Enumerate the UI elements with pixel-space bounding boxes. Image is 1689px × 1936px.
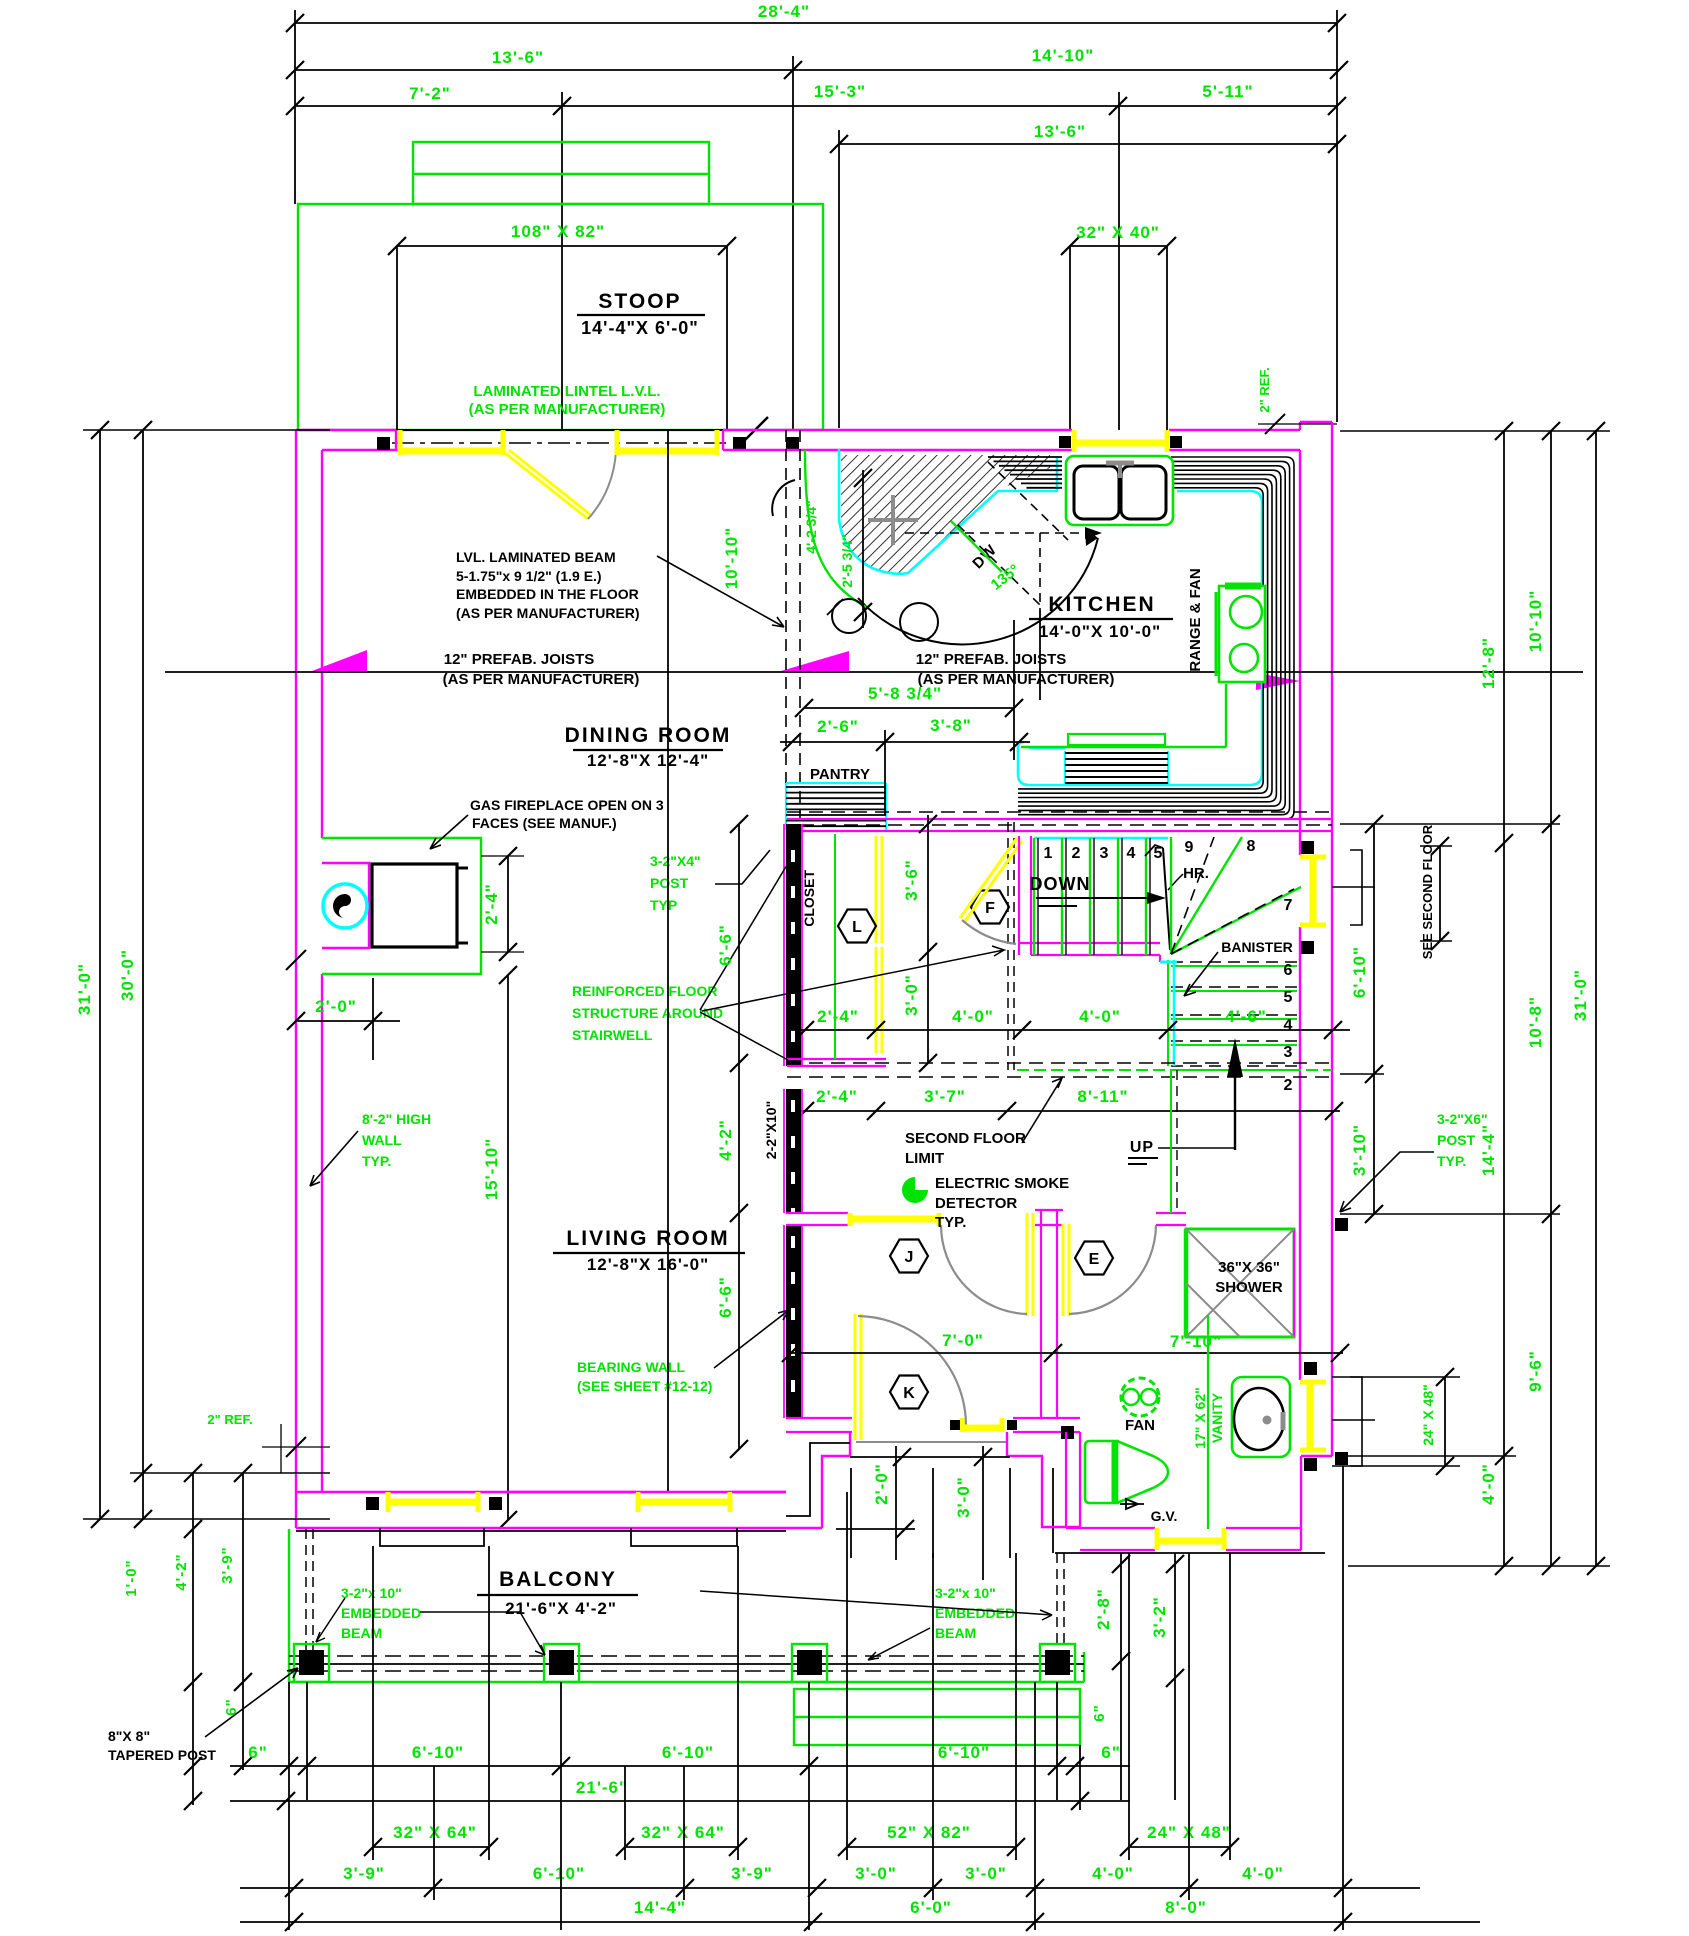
svg-text:VANITY: VANITY: [1209, 1392, 1225, 1443]
svg-text:30'-0": 30'-0": [118, 949, 137, 1001]
svg-text:J: J: [905, 1249, 914, 1266]
svg-text:2'-0": 2'-0": [872, 1463, 891, 1505]
svg-text:(AS PER MANUFACTURER): (AS PER MANUFACTURER): [443, 671, 640, 688]
svg-text:7'-0": 7'-0": [942, 1331, 984, 1350]
svg-text:6'-10": 6'-10": [938, 1743, 990, 1762]
svg-text:5'-8 3/4": 5'-8 3/4": [868, 684, 942, 703]
svg-text:5: 5: [1284, 989, 1293, 1006]
svg-text:3'-0": 3'-0": [965, 1864, 1007, 1883]
svg-text:13'-6": 13'-6": [492, 48, 544, 67]
svg-text:5'-11": 5'-11": [1202, 82, 1253, 101]
svg-text:2'-4": 2'-4": [817, 1007, 859, 1026]
svg-text:1: 1: [1044, 845, 1053, 862]
svg-text:17" X 62": 17" X 62": [1192, 1387, 1208, 1449]
svg-text:1'-0": 1'-0": [123, 1559, 140, 1596]
svg-text:POST: POST: [1437, 1132, 1476, 1148]
svg-text:3'-0": 3'-0": [855, 1864, 897, 1883]
svg-text:PANTRY: PANTRY: [810, 766, 870, 783]
svg-text:G.V.: G.V.: [1151, 1508, 1178, 1524]
svg-text:3-2"X4": 3-2"X4": [650, 853, 701, 869]
svg-text:6'-10": 6'-10": [662, 1743, 714, 1762]
svg-text:6'-10": 6'-10": [1350, 946, 1369, 998]
svg-text:12'-8": 12'-8": [1479, 637, 1498, 689]
svg-text:12" PREFAB. JOISTS: 12" PREFAB. JOISTS: [916, 651, 1067, 668]
svg-text:8'-0": 8'-0": [1165, 1898, 1207, 1917]
svg-text:31'-0": 31'-0": [1571, 969, 1590, 1021]
svg-text:15'-3": 15'-3": [814, 82, 866, 101]
svg-text:2'-4": 2'-4": [482, 883, 501, 925]
svg-text:SEE SECOND FLOOR: SEE SECOND FLOOR: [1420, 824, 1435, 959]
svg-text:DETECTOR: DETECTOR: [935, 1195, 1017, 1212]
svg-text:TYP.: TYP.: [935, 1214, 966, 1231]
svg-text:3: 3: [1100, 845, 1109, 862]
svg-text:10'-8": 10'-8": [1526, 996, 1545, 1048]
svg-text:FAN: FAN: [1125, 1417, 1155, 1434]
svg-text:4'-0": 4'-0": [1242, 1864, 1284, 1883]
svg-text:3'-7": 3'-7": [924, 1087, 966, 1106]
svg-text:4: 4: [1284, 1017, 1293, 1034]
svg-text:3: 3: [1284, 1044, 1293, 1061]
svg-text:BEARING WALL: BEARING WALL: [577, 1359, 686, 1375]
svg-text:32" X 40": 32" X 40": [1076, 223, 1160, 242]
svg-text:3'-6": 3'-6": [902, 859, 921, 901]
svg-text:52" X 82": 52" X 82": [887, 1823, 971, 1842]
svg-text:2: 2: [1284, 1077, 1293, 1094]
svg-text:3-2"x 10": 3-2"x 10": [341, 1585, 402, 1601]
svg-text:6'-6": 6'-6": [716, 1276, 735, 1318]
svg-text:BEAM: BEAM: [935, 1625, 976, 1641]
svg-text:2'-4": 2'-4": [816, 1087, 858, 1106]
svg-text:SHOWER: SHOWER: [1215, 1279, 1283, 1296]
svg-text:BEAM: BEAM: [341, 1625, 382, 1641]
svg-text:(AS PER MANUFACTURER): (AS PER MANUFACTURER): [469, 401, 666, 418]
svg-text:24" X 48": 24" X 48": [1420, 1384, 1436, 1446]
svg-text:8'-2" HIGH: 8'-2" HIGH: [362, 1111, 431, 1127]
svg-text:3'-0": 3'-0": [902, 974, 921, 1016]
svg-text:7'-2": 7'-2": [409, 84, 451, 103]
svg-text:STOOP: STOOP: [598, 290, 681, 313]
svg-text:4'-2": 4'-2": [716, 1119, 735, 1161]
svg-text:12'-8"X 12'-4": 12'-8"X 12'-4": [587, 751, 709, 770]
svg-text:2'-5 3/4": 2'-5 3/4": [839, 534, 855, 588]
svg-text:6'-10": 6'-10": [533, 1864, 585, 1883]
svg-text:(SEE SHEET #12-12): (SEE SHEET #12-12): [577, 1378, 712, 1394]
svg-text:3'-9": 3'-9": [343, 1864, 385, 1883]
svg-text:14'-4": 14'-4": [634, 1898, 686, 1917]
svg-text:4'-2": 4'-2": [173, 1553, 190, 1590]
svg-text:CLOSET: CLOSET: [801, 870, 817, 927]
svg-text:KITCHEN: KITCHEN: [1048, 593, 1155, 616]
svg-text:14'-4"X 6'-0": 14'-4"X 6'-0": [581, 318, 699, 338]
svg-text:TYP: TYP: [650, 897, 677, 913]
svg-text:14'-4": 14'-4": [1479, 1124, 1498, 1176]
svg-text:LIVING ROOM: LIVING ROOM: [566, 1227, 729, 1250]
svg-text:BALCONY: BALCONY: [499, 1568, 617, 1591]
svg-text:2'-6": 2'-6": [817, 717, 859, 736]
svg-text:EMBEDDED: EMBEDDED: [341, 1605, 421, 1621]
svg-text:GAS FIREPLACE OPEN ON 3: GAS FIREPLACE OPEN ON 3: [470, 797, 664, 813]
svg-text:5-1.75"x 9 1/2" (1.9 E.): 5-1.75"x 9 1/2" (1.9 E.): [456, 568, 602, 584]
svg-text:SECOND FLOOR: SECOND FLOOR: [905, 1130, 1026, 1147]
svg-text:14'-10": 14'-10": [1032, 46, 1095, 65]
svg-text:3'-2": 3'-2": [1150, 1596, 1169, 1638]
svg-text:TYP.: TYP.: [1437, 1153, 1466, 1169]
svg-text:3'-0": 3'-0": [954, 1476, 973, 1518]
svg-text:6": 6": [248, 1743, 268, 1762]
svg-text:BANISTER: BANISTER: [1221, 939, 1293, 955]
svg-text:7'-10": 7'-10": [1170, 1332, 1222, 1351]
svg-text:HR.: HR.: [1183, 865, 1209, 882]
svg-text:REINFORCED FLOOR: REINFORCED FLOOR: [572, 983, 717, 999]
svg-text:31'-0": 31'-0": [75, 963, 94, 1015]
svg-text:8: 8: [1247, 838, 1256, 855]
svg-text:3'-9": 3'-9": [731, 1864, 773, 1883]
svg-text:UP: UP: [1130, 1139, 1154, 1156]
svg-text:(AS PER MANUFACTURER): (AS PER MANUFACTURER): [456, 605, 640, 621]
svg-text:2" REF.: 2" REF.: [207, 1412, 252, 1427]
svg-text:15'-10": 15'-10": [482, 1138, 501, 1201]
svg-text:4'-0": 4'-0": [1092, 1864, 1134, 1883]
svg-text:TAPERED POST: TAPERED POST: [108, 1747, 216, 1763]
svg-text:LAMINATED LINTEL L.V.L.: LAMINATED LINTEL L.V.L.: [473, 383, 660, 400]
svg-text:108" X 82": 108" X 82": [511, 222, 605, 241]
svg-text:DINING ROOM: DINING ROOM: [565, 724, 732, 747]
svg-text:32" X 64": 32" X 64": [641, 1823, 725, 1842]
svg-text:WALL: WALL: [362, 1132, 402, 1148]
svg-text:8"X 8": 8"X 8": [108, 1728, 150, 1744]
svg-text:28'-4": 28'-4": [758, 2, 810, 21]
svg-text:10'-10": 10'-10": [722, 527, 741, 590]
svg-text:6'-0": 6'-0": [910, 1898, 952, 1917]
svg-text:K: K: [903, 1385, 915, 1402]
svg-text:DOWN: DOWN: [1030, 874, 1091, 894]
svg-text:4: 4: [1127, 845, 1136, 862]
svg-text:4'-2 3/4": 4'-2 3/4": [803, 500, 819, 554]
svg-text:8'-11": 8'-11": [1077, 1087, 1128, 1106]
svg-text:E: E: [1089, 1251, 1100, 1268]
svg-text:F: F: [985, 900, 995, 917]
svg-text:RANGE & FAN: RANGE & FAN: [1187, 568, 1204, 671]
svg-text:3'-10": 3'-10": [1350, 1124, 1369, 1176]
svg-text:(AS PER MANUFACTURER): (AS PER MANUFACTURER): [918, 671, 1115, 688]
svg-text:14'-0"X 10'-0": 14'-0"X 10'-0": [1039, 622, 1161, 641]
svg-text:36"X 36": 36"X 36": [1218, 1259, 1280, 1276]
svg-text:6'-6": 6'-6": [716, 924, 735, 966]
svg-text:3'-9": 3'-9": [219, 1546, 236, 1583]
svg-text:LIMIT: LIMIT: [905, 1150, 944, 1167]
svg-text:2'-0": 2'-0": [315, 997, 357, 1016]
svg-text:EMBEDDED IN THE FLOOR: EMBEDDED IN THE FLOOR: [456, 586, 639, 602]
svg-text:6": 6": [1101, 1743, 1121, 1762]
svg-text:13'-6": 13'-6": [1034, 122, 1086, 141]
svg-text:ELECTRIC SMOKE: ELECTRIC SMOKE: [935, 1175, 1069, 1192]
svg-text:6'-10": 6'-10": [412, 1743, 464, 1762]
svg-text:6: 6: [1284, 962, 1293, 979]
svg-text:3'-8": 3'-8": [930, 716, 972, 735]
svg-text:7: 7: [1284, 897, 1293, 914]
svg-text:2: 2: [1072, 845, 1081, 862]
svg-text:32" X 64": 32" X 64": [393, 1823, 477, 1842]
svg-text:9'-6": 9'-6": [1526, 1350, 1545, 1392]
svg-text:4'-0": 4'-0": [1079, 1007, 1121, 1026]
svg-text:12" PREFAB. JOISTS: 12" PREFAB. JOISTS: [444, 651, 595, 668]
svg-text:4'-0": 4'-0": [952, 1007, 994, 1026]
svg-text:6": 6": [223, 1698, 240, 1715]
svg-text:4'-0": 4'-0": [1479, 1463, 1498, 1505]
svg-text:9: 9: [1185, 839, 1194, 856]
svg-text:6": 6": [1091, 1704, 1108, 1721]
svg-text:2'-8": 2'-8": [1094, 1588, 1113, 1630]
svg-text:10'-10": 10'-10": [1526, 590, 1545, 653]
svg-text:21'-6": 21'-6": [576, 1778, 628, 1797]
svg-text:FACES (SEE MANUF.): FACES (SEE MANUF.): [472, 815, 617, 831]
svg-text:4'-6": 4'-6": [1225, 1007, 1267, 1026]
svg-text:POST: POST: [650, 875, 689, 891]
svg-text:L: L: [852, 919, 862, 936]
svg-text:STAIRWELL: STAIRWELL: [572, 1027, 653, 1043]
svg-text:LVL. LAMINATED BEAM: LVL. LAMINATED BEAM: [456, 549, 616, 565]
svg-text:12'-8"X 16'-0": 12'-8"X 16'-0": [587, 1255, 709, 1274]
svg-text:2-2"X10": 2-2"X10": [763, 1101, 779, 1159]
svg-text:3-2"x 10": 3-2"x 10": [935, 1585, 996, 1601]
svg-text:TYP.: TYP.: [362, 1153, 391, 1169]
svg-text:2" REF.: 2" REF.: [1257, 367, 1272, 412]
